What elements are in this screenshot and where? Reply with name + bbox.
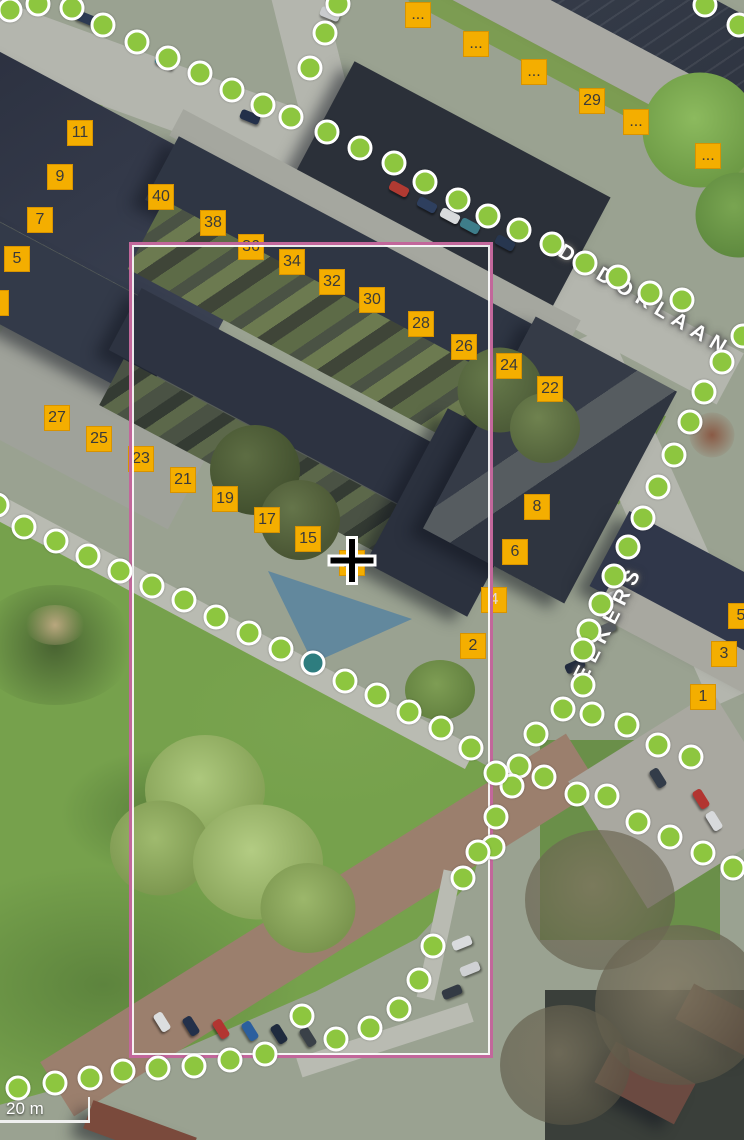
recording-point[interactable] [237,621,262,646]
recording-point[interactable] [580,702,605,727]
recording-point[interactable] [551,697,576,722]
recording-point[interactable] [44,529,69,554]
house-number-label: ... [405,2,431,28]
recording-point[interactable] [602,564,627,589]
house-number-label: 29 [579,88,605,114]
house-number-label: 22 [537,376,563,402]
recording-point[interactable] [589,592,614,617]
house-number-label: 38 [200,210,226,236]
bare-tree [500,1005,630,1125]
scale-bar-label: 20 m [0,1097,44,1121]
tree [510,393,580,463]
aerial-map-viewport[interactable]: DUDOKLAANEEKERS 119753403836343230282624… [0,0,744,1140]
house-number-label: 7 [27,207,53,233]
house-number-label: 3 [0,290,9,316]
recording-point[interactable] [413,170,438,195]
recording-point[interactable] [670,288,695,313]
recording-point[interactable] [298,56,323,81]
recording-point[interactable] [146,1056,171,1081]
recording-point[interactable] [125,30,150,55]
recording-point[interactable] [571,673,596,698]
tree [643,73,744,188]
recording-point[interactable] [253,1042,278,1067]
recording-point[interactable] [658,825,683,850]
house-number-label: 40 [148,184,174,210]
recording-point[interactable] [387,997,412,1022]
house-number-label: 8 [524,494,550,520]
recording-point[interactable] [484,761,509,786]
house-number-label: ... [695,143,721,169]
house-number-label: 5 [4,246,30,272]
recording-point[interactable] [727,13,744,38]
recording-point[interactable] [571,638,596,663]
house-number-label: 3 [711,641,737,667]
recording-point[interactable] [397,700,422,725]
recording-point[interactable] [78,1066,103,1091]
recording-point[interactable] [204,605,229,630]
recording-point[interactable] [333,669,358,694]
recording-point[interactable] [111,1059,136,1084]
recording-point[interactable] [108,559,133,584]
recording-point[interactable] [172,588,197,613]
recording-point[interactable] [218,1048,243,1073]
recording-point[interactable] [692,380,717,405]
recording-point[interactable] [646,475,671,500]
recording-point[interactable] [290,1004,315,1029]
recording-point[interactable] [324,1027,349,1052]
recording-point[interactable] [615,713,640,738]
recording-point[interactable] [382,151,407,176]
recording-point[interactable] [573,251,598,276]
house-number-label: 25 [86,426,112,452]
house-number-label: 5 [728,603,744,629]
recording-point[interactable] [43,1071,68,1096]
recording-point[interactable] [631,506,656,531]
recording-point[interactable] [313,21,338,46]
selected-recording-point[interactable] [301,651,326,676]
recording-point[interactable] [466,840,491,865]
recording-point[interactable] [182,1054,207,1079]
recording-point[interactable] [540,232,565,257]
house-number-label: ... [463,31,489,57]
house-number-label: 11 [67,120,93,146]
recording-point[interactable] [446,188,471,213]
recording-point[interactable] [691,841,716,866]
recording-point[interactable] [459,736,484,761]
recording-point[interactable] [565,782,590,807]
recording-point[interactable] [279,105,304,130]
house-number-label: 24 [496,353,522,379]
recording-point[interactable] [484,805,509,830]
recording-point[interactable] [710,350,735,375]
recording-point[interactable] [407,968,432,993]
recording-point[interactable] [269,637,294,662]
recording-point[interactable] [616,535,641,560]
recording-point[interactable] [91,13,116,38]
recording-point[interactable] [638,281,663,306]
house-number-label: 27 [44,405,70,431]
recording-point[interactable] [451,866,476,891]
crosshair-cursor [326,535,378,592]
house-number-label: ... [623,109,649,135]
recording-point[interactable] [679,745,704,770]
house-number-label: 9 [47,164,73,190]
house-number-label: 6 [502,539,528,565]
recording-point[interactable] [678,410,703,435]
sand-patch [25,605,85,645]
recording-point[interactable] [12,515,37,540]
recording-point[interactable] [348,136,373,161]
recording-point[interactable] [156,46,181,71]
recording-point[interactable] [626,810,651,835]
recording-point[interactable] [606,265,631,290]
recording-point[interactable] [476,204,501,229]
recording-point[interactable] [220,78,245,103]
recording-point[interactable] [507,218,532,243]
recording-point[interactable] [315,120,340,145]
recording-point[interactable] [140,574,165,599]
recording-point[interactable] [662,443,687,468]
recording-point[interactable] [524,722,549,747]
recording-point[interactable] [76,544,101,569]
recording-point[interactable] [721,856,744,881]
recording-point[interactable] [429,716,454,741]
recording-point[interactable] [251,93,276,118]
recording-point[interactable] [365,683,390,708]
scale-bar: 20 m [0,1097,90,1123]
building-roof-red [83,1100,197,1140]
recording-point[interactable] [421,934,446,959]
recording-point[interactable] [646,733,671,758]
recording-point[interactable] [188,61,213,86]
recording-point[interactable] [595,784,620,809]
house-number-label: ... [521,59,547,85]
recording-point[interactable] [532,765,557,790]
house-number-label: 1 [690,684,716,710]
recording-point[interactable] [358,1016,383,1041]
